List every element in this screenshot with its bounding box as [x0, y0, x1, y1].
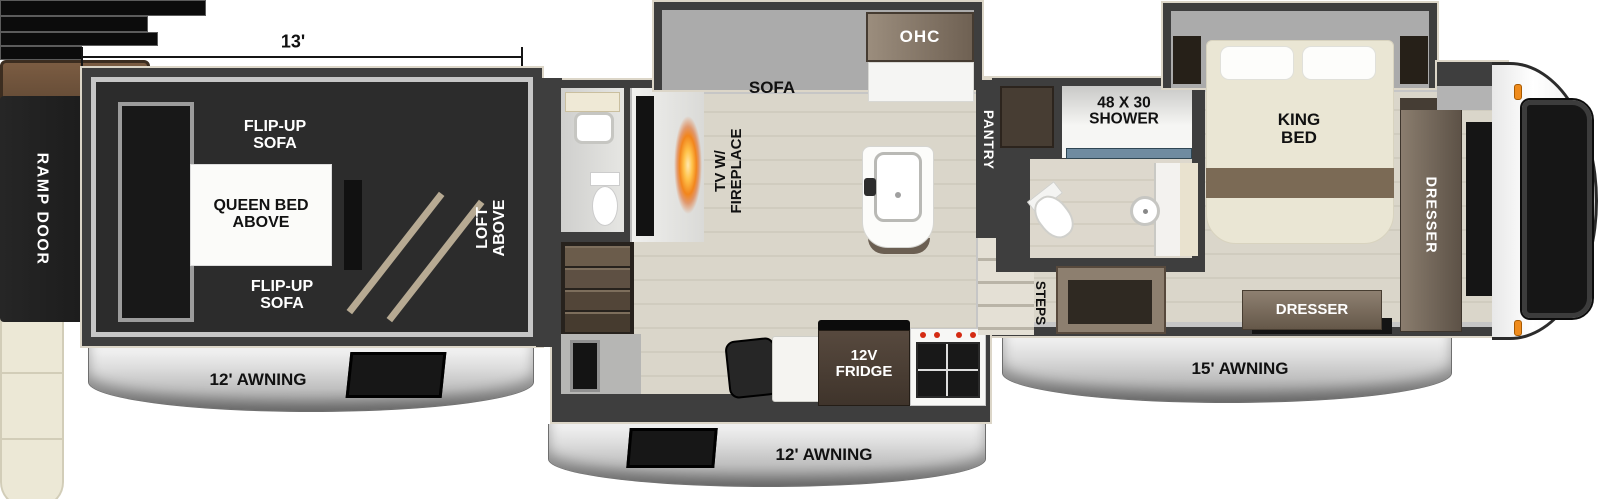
loft-above-label: LOFT ABOVE	[475, 186, 509, 270]
nightstand-left	[1173, 36, 1201, 84]
garage-cabinet	[344, 180, 362, 270]
island-faucet	[864, 178, 876, 196]
ramp-door-panel	[118, 102, 194, 322]
pantry-cabinet	[1000, 86, 1054, 148]
sofa-sectional	[0, 306, 64, 499]
dimension-tick-right	[521, 47, 523, 66]
king-bed-pillow-left	[1220, 46, 1294, 80]
tv-panel	[636, 96, 654, 236]
awning-front-label: 15' AWNING	[1192, 360, 1289, 378]
pantry-label: PANTRY	[981, 95, 995, 185]
bath-desk-top	[1068, 280, 1152, 324]
stove-knob-4	[970, 332, 976, 338]
stove-knob-1	[920, 332, 926, 338]
awning-main	[548, 424, 986, 487]
island-sink	[874, 152, 922, 222]
sofa-label: SOFA	[749, 79, 795, 97]
awning-step-main	[626, 428, 717, 468]
loft-stair-tread-2	[565, 268, 630, 288]
ohc-label: OHC	[900, 28, 941, 46]
tv-fireplace-label: TV W/ FIREPLACE	[713, 115, 745, 227]
shower-label: 48 X 30 SHOWER	[1074, 96, 1174, 129]
dresser-front-label: DRESSER	[1276, 302, 1349, 318]
awning-garage	[88, 348, 534, 412]
half-bath-toilet-tank	[590, 172, 620, 186]
floorplan: 13' RAMP DOOR FLIP-UP SOFA QUEEN BED ABO…	[0, 0, 1600, 499]
dimension-label: 13'	[281, 32, 305, 51]
fridge-label: 12V FRIDGE	[828, 348, 900, 380]
half-bath-counter	[565, 92, 620, 112]
flip-up-sofa-bottom-label: FLIP-UP SOFA	[232, 279, 332, 313]
stove-knob-3	[956, 332, 962, 338]
entry-door	[570, 340, 600, 392]
garage-window-bottom-right	[0, 46, 82, 60]
island-sink-drain	[895, 192, 901, 198]
front-slide-floor	[1437, 86, 1495, 110]
dimension-tick-left	[81, 47, 83, 66]
queen-bed-above-label: QUEEN BED ABOVE	[201, 198, 321, 232]
front-cap-window	[1522, 100, 1592, 318]
garage-window-top-right	[0, 16, 148, 32]
fireplace-flame	[674, 116, 702, 214]
steps-label: STEPS	[1033, 268, 1047, 338]
dimension-line	[82, 56, 523, 58]
shower-glass	[1066, 148, 1192, 159]
king-bed-pillow-right	[1302, 46, 1376, 80]
dresser-side-label: DRESSER	[1422, 135, 1437, 295]
awning-garage-label: 12' AWNING	[210, 371, 307, 389]
stove-grates	[916, 342, 980, 398]
ramp-door-label: RAMP DOOR	[33, 109, 50, 309]
half-bath-sink	[574, 112, 614, 144]
kitchen-counter	[868, 62, 974, 102]
marker-light-top	[1514, 84, 1522, 100]
garage-living-wall	[536, 78, 562, 347]
king-bed-label: KING BED	[1261, 111, 1337, 147]
half-bath-toilet-bowl	[592, 186, 618, 226]
loft-stair-tread-3	[565, 290, 630, 310]
loft-stair-tread-4	[565, 312, 630, 332]
garage-window-top-left	[0, 0, 206, 16]
awning-main-label: 12' AWNING	[776, 446, 873, 464]
flip-up-sofa-top-label: FLIP-UP SOFA	[225, 119, 325, 153]
marker-light-bottom	[1514, 320, 1522, 336]
garage-window-bottom-left	[0, 32, 158, 46]
awning-step-garage	[346, 352, 447, 398]
bath-sink-drain	[1143, 209, 1148, 214]
nightstand-right	[1400, 36, 1428, 84]
stove-knob-2	[934, 332, 940, 338]
king-bed-runner	[1206, 168, 1394, 198]
bath-door-panel	[1180, 163, 1198, 256]
loft-stair-tread-1	[565, 246, 630, 266]
